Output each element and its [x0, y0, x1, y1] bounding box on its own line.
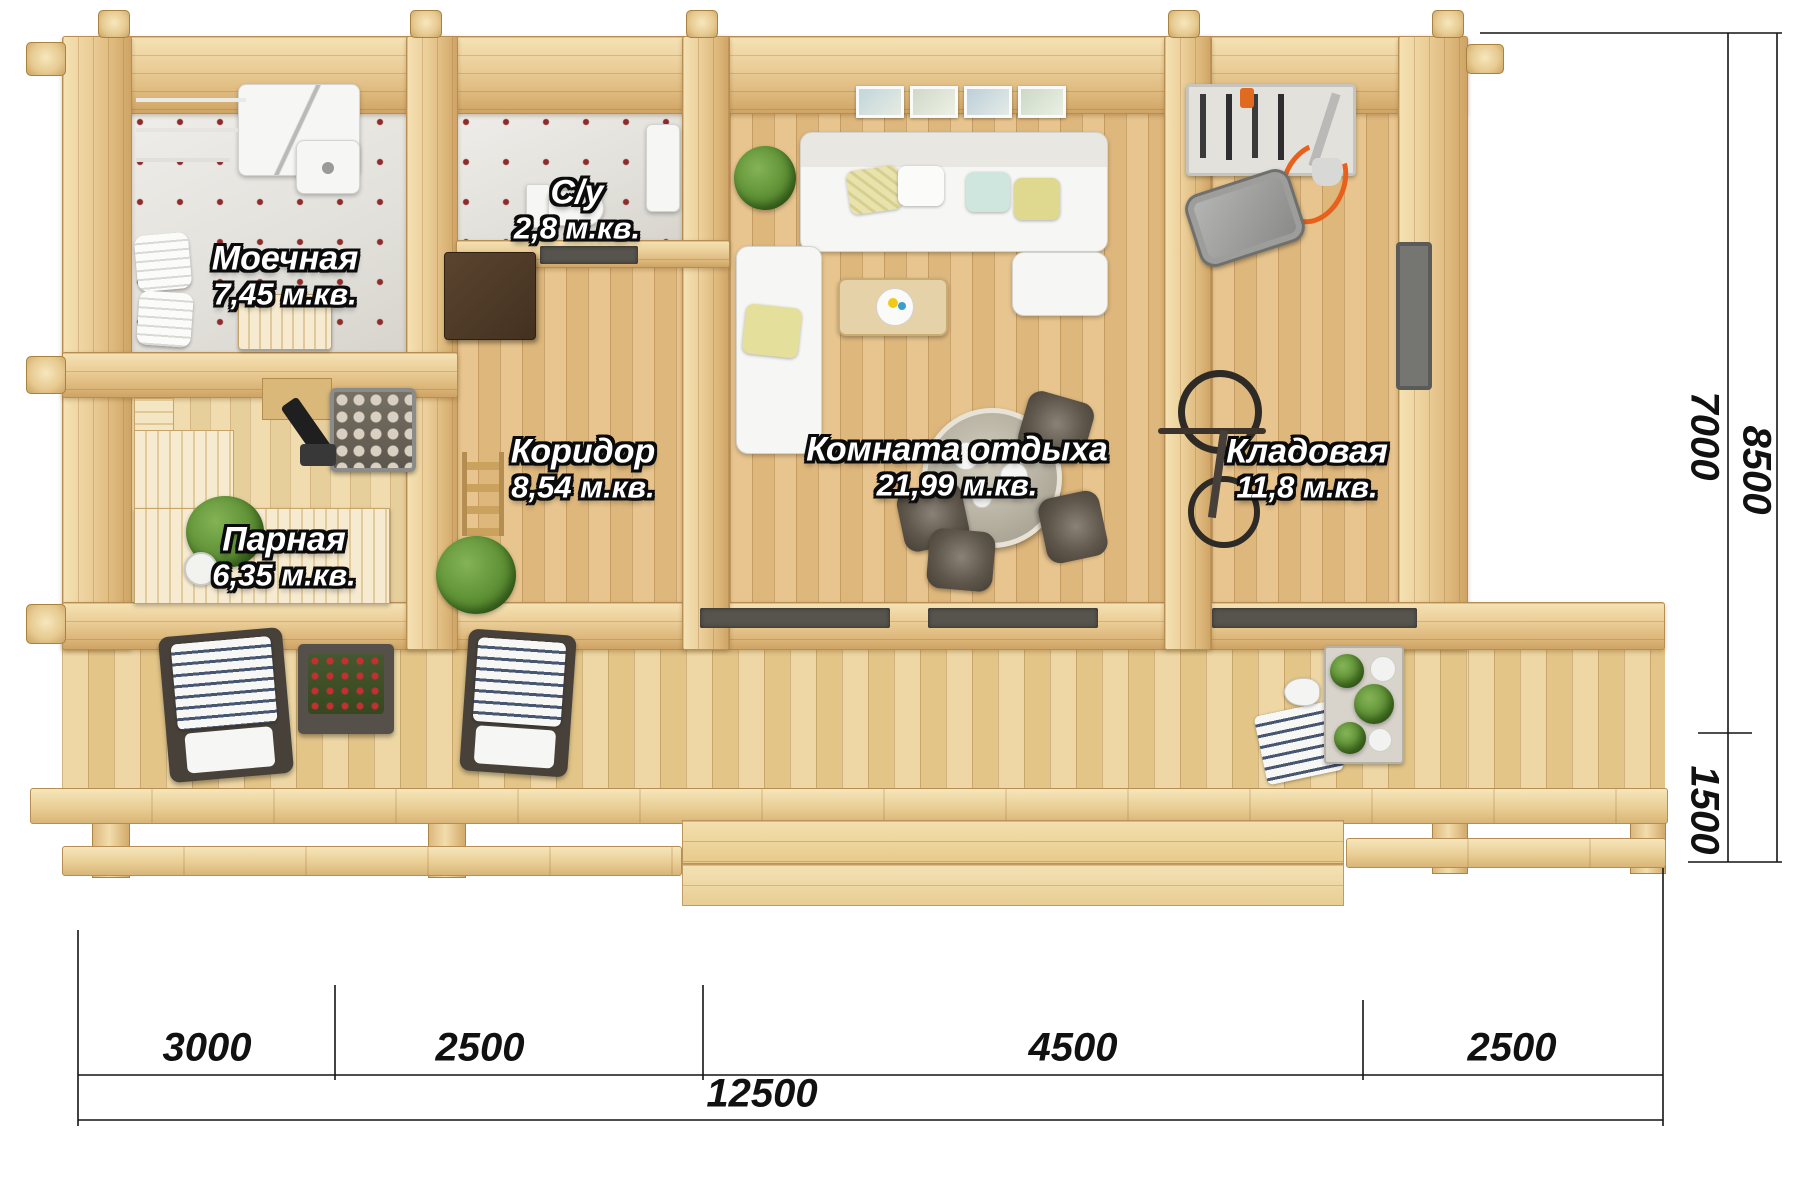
corridor-shrub	[436, 536, 516, 614]
log-end	[26, 604, 66, 644]
dim-bottom-total: 12500	[706, 1072, 817, 1117]
room-label-wc: С/у 2,8 м.кв.	[514, 174, 640, 247]
chair-cushion-plain	[184, 726, 275, 774]
towel-rail	[136, 128, 238, 132]
wall-picture	[1018, 86, 1066, 118]
dim-bottom-2: 2500	[436, 1026, 525, 1071]
room-label-washroom: Моечная 7,45 м.кв.	[212, 240, 358, 313]
dim-right-lower: 1500	[1682, 766, 1727, 855]
room-area: 21,99 м.кв.	[806, 469, 1108, 504]
dim-right-upper: 7000	[1682, 392, 1727, 481]
room-label-steam-room: Парная 6,35 м.кв.	[212, 521, 356, 594]
tool-handle	[1226, 94, 1232, 160]
stand-plant	[1354, 684, 1394, 724]
sofa-corner-section	[1012, 252, 1108, 316]
terrace-door-mat	[1212, 608, 1417, 628]
watering-can	[1284, 678, 1320, 706]
flower-box	[308, 654, 384, 714]
chair-cushion-plain	[474, 725, 556, 768]
room-label-lounge: Комната отдыха 21,99 м.кв.	[806, 431, 1108, 504]
wall-left	[62, 36, 132, 650]
room-name: Моечная	[212, 240, 358, 278]
dim-right-total: 8500	[1734, 426, 1779, 515]
log-end	[686, 10, 718, 38]
entrance-step-lower	[682, 864, 1344, 906]
wall-picture	[964, 86, 1012, 118]
stand-plant	[1330, 654, 1364, 688]
room-name: Кладовая	[1226, 433, 1388, 471]
lounge-chair	[459, 628, 577, 777]
tray-item	[898, 302, 906, 310]
open-door-leaf	[444, 252, 536, 340]
room-area: 6,35 м.кв.	[212, 559, 356, 594]
towel	[136, 290, 194, 348]
wall-corridor-lounge	[682, 36, 730, 650]
room-name: Коридор	[511, 433, 655, 471]
log-end	[1432, 10, 1464, 38]
terrace-front-beam	[30, 788, 1668, 824]
dim-bottom-4: 2500	[1468, 1026, 1557, 1071]
tool-handle	[1278, 94, 1284, 160]
room-area: 2,8 м.кв.	[514, 212, 640, 247]
floor-plan: Моечная 7,45 м.кв. С/у 2,8 м.кв. Парная …	[0, 0, 1800, 1200]
room-label-storage: Кладовая 11,8 м.кв.	[1226, 433, 1388, 506]
plant-stand	[1324, 646, 1404, 764]
coat-rack	[462, 452, 504, 536]
towel-rail	[136, 158, 230, 162]
towel	[134, 232, 193, 292]
stove-duct	[300, 444, 336, 466]
terrace-door-mat	[700, 608, 890, 628]
dim-bottom-3: 4500	[1029, 1026, 1118, 1071]
stand-plant	[1334, 722, 1366, 754]
lounge-plant	[734, 146, 796, 210]
stand-pot	[1370, 656, 1396, 682]
log-end	[1466, 44, 1504, 74]
sofa-pillow	[966, 172, 1010, 212]
room-name: С/у	[514, 174, 640, 212]
room-area: 7,45 м.кв.	[212, 278, 358, 313]
towel-rail	[136, 98, 246, 102]
sofa-pillow	[742, 303, 803, 359]
terrace-lower-rail	[62, 846, 682, 876]
terrace-flower-table	[298, 644, 394, 734]
lounge-chair	[158, 627, 294, 783]
room-name: Комната отдыха	[806, 431, 1108, 469]
wc-threshold	[540, 246, 638, 264]
storage-window	[1396, 242, 1432, 390]
chair-cushion-striped	[171, 636, 278, 730]
wall-picture	[910, 86, 958, 118]
sofa-pillow	[1014, 178, 1060, 220]
washbasin-drain	[322, 162, 334, 174]
log-end	[98, 10, 130, 38]
sofa-pillow	[898, 166, 944, 206]
wall-picture	[856, 86, 904, 118]
tool-handle	[1200, 94, 1206, 158]
room-label-corridor: Коридор 8,54 м.кв.	[511, 433, 655, 506]
dining-chair	[926, 527, 997, 593]
chair-cushion-striped	[473, 637, 567, 727]
tray-item	[888, 298, 898, 308]
dim-bottom-1: 3000	[163, 1026, 252, 1071]
water-heater	[646, 124, 680, 212]
room-area: 11,8 м.кв.	[1226, 471, 1388, 506]
room-area: 8,54 м.кв.	[511, 471, 655, 506]
log-end	[26, 42, 66, 76]
sofa-top-section	[800, 132, 1108, 252]
room-name: Парная	[212, 521, 356, 559]
tool-orange-grip	[1240, 88, 1254, 108]
sauna-stove	[330, 388, 416, 472]
log-end	[410, 10, 442, 38]
terrace-door-mat	[928, 608, 1098, 628]
terrace-lower-rail	[1346, 838, 1666, 868]
log-end	[26, 356, 66, 394]
sofa-pillow	[845, 165, 903, 216]
stand-pot	[1368, 728, 1392, 752]
entrance-step-upper	[682, 820, 1344, 864]
log-end	[1168, 10, 1200, 38]
